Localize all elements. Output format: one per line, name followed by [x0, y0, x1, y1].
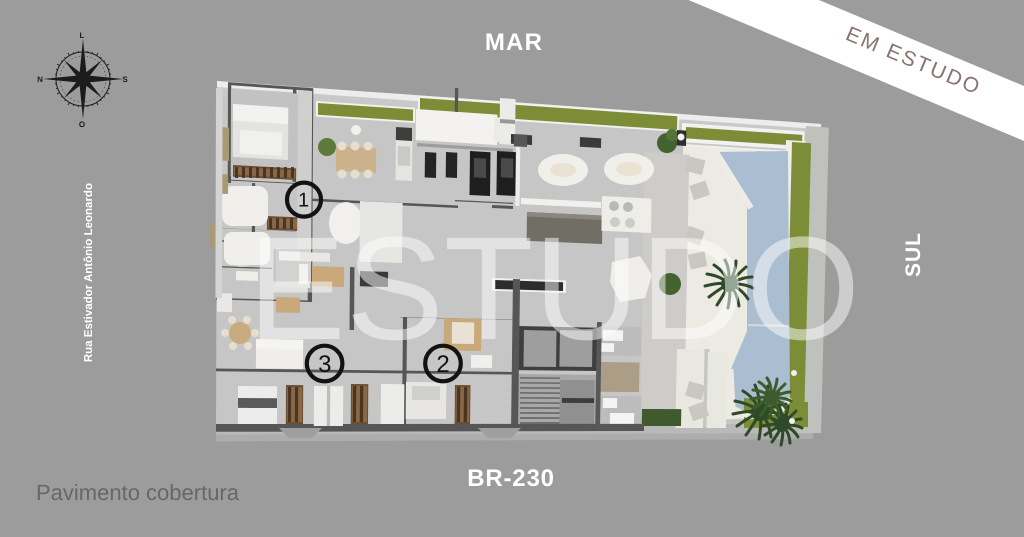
svg-text:BR-230: BR-230 — [467, 465, 555, 492]
svg-text:3: 3 — [318, 351, 331, 378]
svg-text:SUL: SUL — [902, 232, 925, 277]
svg-text:ESTUDO: ESTUDO — [248, 207, 861, 371]
svg-text:L: L — [80, 31, 85, 40]
svg-text:2: 2 — [436, 351, 449, 378]
svg-text:S: S — [122, 75, 128, 84]
svg-text:Rua Estivador Antônio Leonardo: Rua Estivador Antônio Leonardo — [83, 183, 95, 362]
svg-text:1: 1 — [298, 190, 309, 212]
svg-text:N: N — [37, 75, 43, 84]
svg-text:O: O — [79, 120, 85, 129]
svg-text:MAR: MAR — [485, 29, 543, 56]
svg-text:Pavimento cobertura: Pavimento cobertura — [36, 480, 240, 505]
